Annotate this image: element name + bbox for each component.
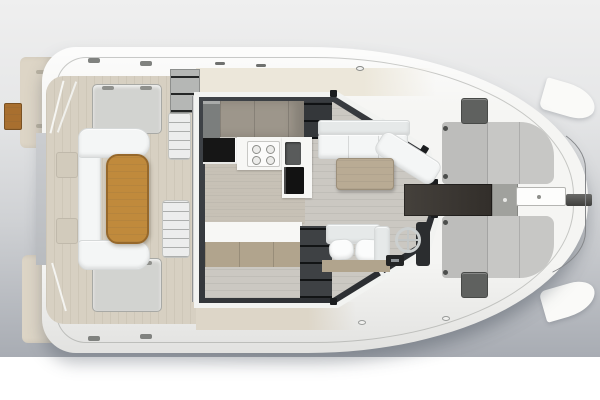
deck-hatch-small-2 — [56, 218, 78, 244]
stove-burner-icon — [266, 156, 275, 165]
sunpad-cleat-icon — [443, 174, 448, 179]
deck-bench-hatch-top — [92, 84, 162, 134]
cockpit-teak-table — [106, 154, 149, 244]
deck-cleat-icon — [140, 334, 152, 339]
bow-rail-arc — [498, 116, 586, 284]
bottom-margin — [0, 357, 600, 400]
nav-seat-pillow-1 — [328, 238, 354, 261]
deck-cleat-icon — [256, 64, 266, 67]
nav-seat-base — [322, 260, 390, 272]
salon-table — [336, 158, 394, 190]
deck-hatch-small-1 — [56, 152, 78, 178]
hinge-icon — [140, 86, 152, 90]
sunpad-cleat-icon — [443, 220, 448, 225]
deck-cleat-icon — [215, 62, 225, 65]
center-walkway — [404, 184, 492, 216]
deck-cleat-icon — [88, 336, 100, 341]
foredeck-hatch-top — [461, 98, 488, 124]
frame-corner-joint — [330, 298, 337, 305]
console-label-plate — [391, 259, 399, 262]
stove-burner-icon — [252, 145, 261, 154]
frame-corner-joint — [330, 90, 337, 97]
cockpit-sofa-arm-bottom — [78, 240, 150, 270]
helm-console — [386, 255, 404, 266]
galley-tall-cabinet — [203, 101, 220, 138]
sunpad-cleat-icon — [443, 126, 448, 131]
deck-cleat-icon — [140, 61, 152, 66]
deck-fairlead-icon — [442, 316, 450, 321]
galley-sink — [285, 142, 301, 165]
hinge-icon — [102, 86, 114, 90]
deck-fairlead-icon — [356, 66, 364, 71]
teak-boarding-step — [4, 103, 22, 130]
stove-burner-icon — [266, 145, 275, 154]
galley-stove — [247, 141, 280, 167]
companionway-stairs-top — [168, 112, 191, 160]
sunpad-cleat-icon — [443, 270, 448, 275]
foredeck-hatch-bottom — [461, 272, 488, 298]
catamaran-deck-plan — [0, 0, 600, 400]
galley-upper-cabinets — [220, 101, 304, 137]
side-deck-strip-top — [196, 68, 436, 96]
galley-oven — [284, 167, 304, 194]
helm-wheel — [395, 227, 421, 253]
lower-counter-top — [205, 222, 302, 242]
galley-counter-black — [203, 138, 237, 164]
deck-fairlead-icon — [358, 320, 366, 325]
lower-counter-front — [205, 242, 302, 267]
stove-burner-icon — [252, 156, 261, 165]
companionway-stairs-bottom — [162, 200, 190, 258]
deck-cleat-icon — [88, 58, 100, 63]
